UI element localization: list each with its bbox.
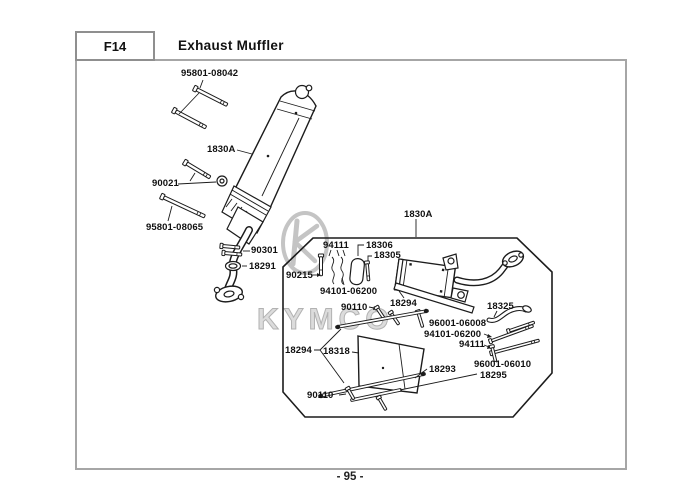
part-label-18295: 18295	[480, 371, 507, 381]
part-label-18318: 18318	[323, 347, 350, 357]
part-label-96001-06008: 96001-06008	[429, 319, 486, 329]
part-label-95801-08042: 95801-08042	[181, 69, 238, 79]
part-label-18294-top: 18294	[390, 299, 417, 309]
page-title: Exhaust Muffler	[178, 38, 284, 53]
section-code-box: F14	[75, 31, 155, 61]
part-label-94101-06200-a: 94101-06200	[320, 287, 377, 297]
page-border-frame	[75, 59, 627, 470]
part-label-18325: 18325	[487, 302, 514, 312]
part-label-90021: 90021	[152, 179, 179, 189]
page-number: - 95 -	[0, 471, 700, 483]
part-label-18294-left: 18294	[285, 346, 312, 356]
part-label-18305: 18305	[374, 251, 401, 261]
part-label-90215: 90215	[286, 271, 313, 281]
part-label-18291: 18291	[249, 262, 276, 272]
part-label-94111-b: 94111	[459, 340, 485, 350]
part-label-90110-top: 90110	[341, 303, 367, 313]
catalog-page: { "header": { "section_code": "F14", "ti…	[0, 0, 700, 495]
part-label-95801-08065: 95801-08065	[146, 223, 203, 233]
part-label-18293: 18293	[429, 365, 456, 375]
part-label-1830A-main: 1830A	[207, 145, 236, 155]
part-label-1830A-inset: 1830A	[404, 210, 433, 220]
part-label-94111-a: 94111	[323, 241, 349, 251]
section-code: F14	[104, 39, 126, 54]
part-label-90301: 90301	[251, 246, 278, 256]
part-label-90110-bottom: 90110	[307, 391, 333, 401]
part-label-96001-06010: 96001-06010	[474, 360, 531, 370]
